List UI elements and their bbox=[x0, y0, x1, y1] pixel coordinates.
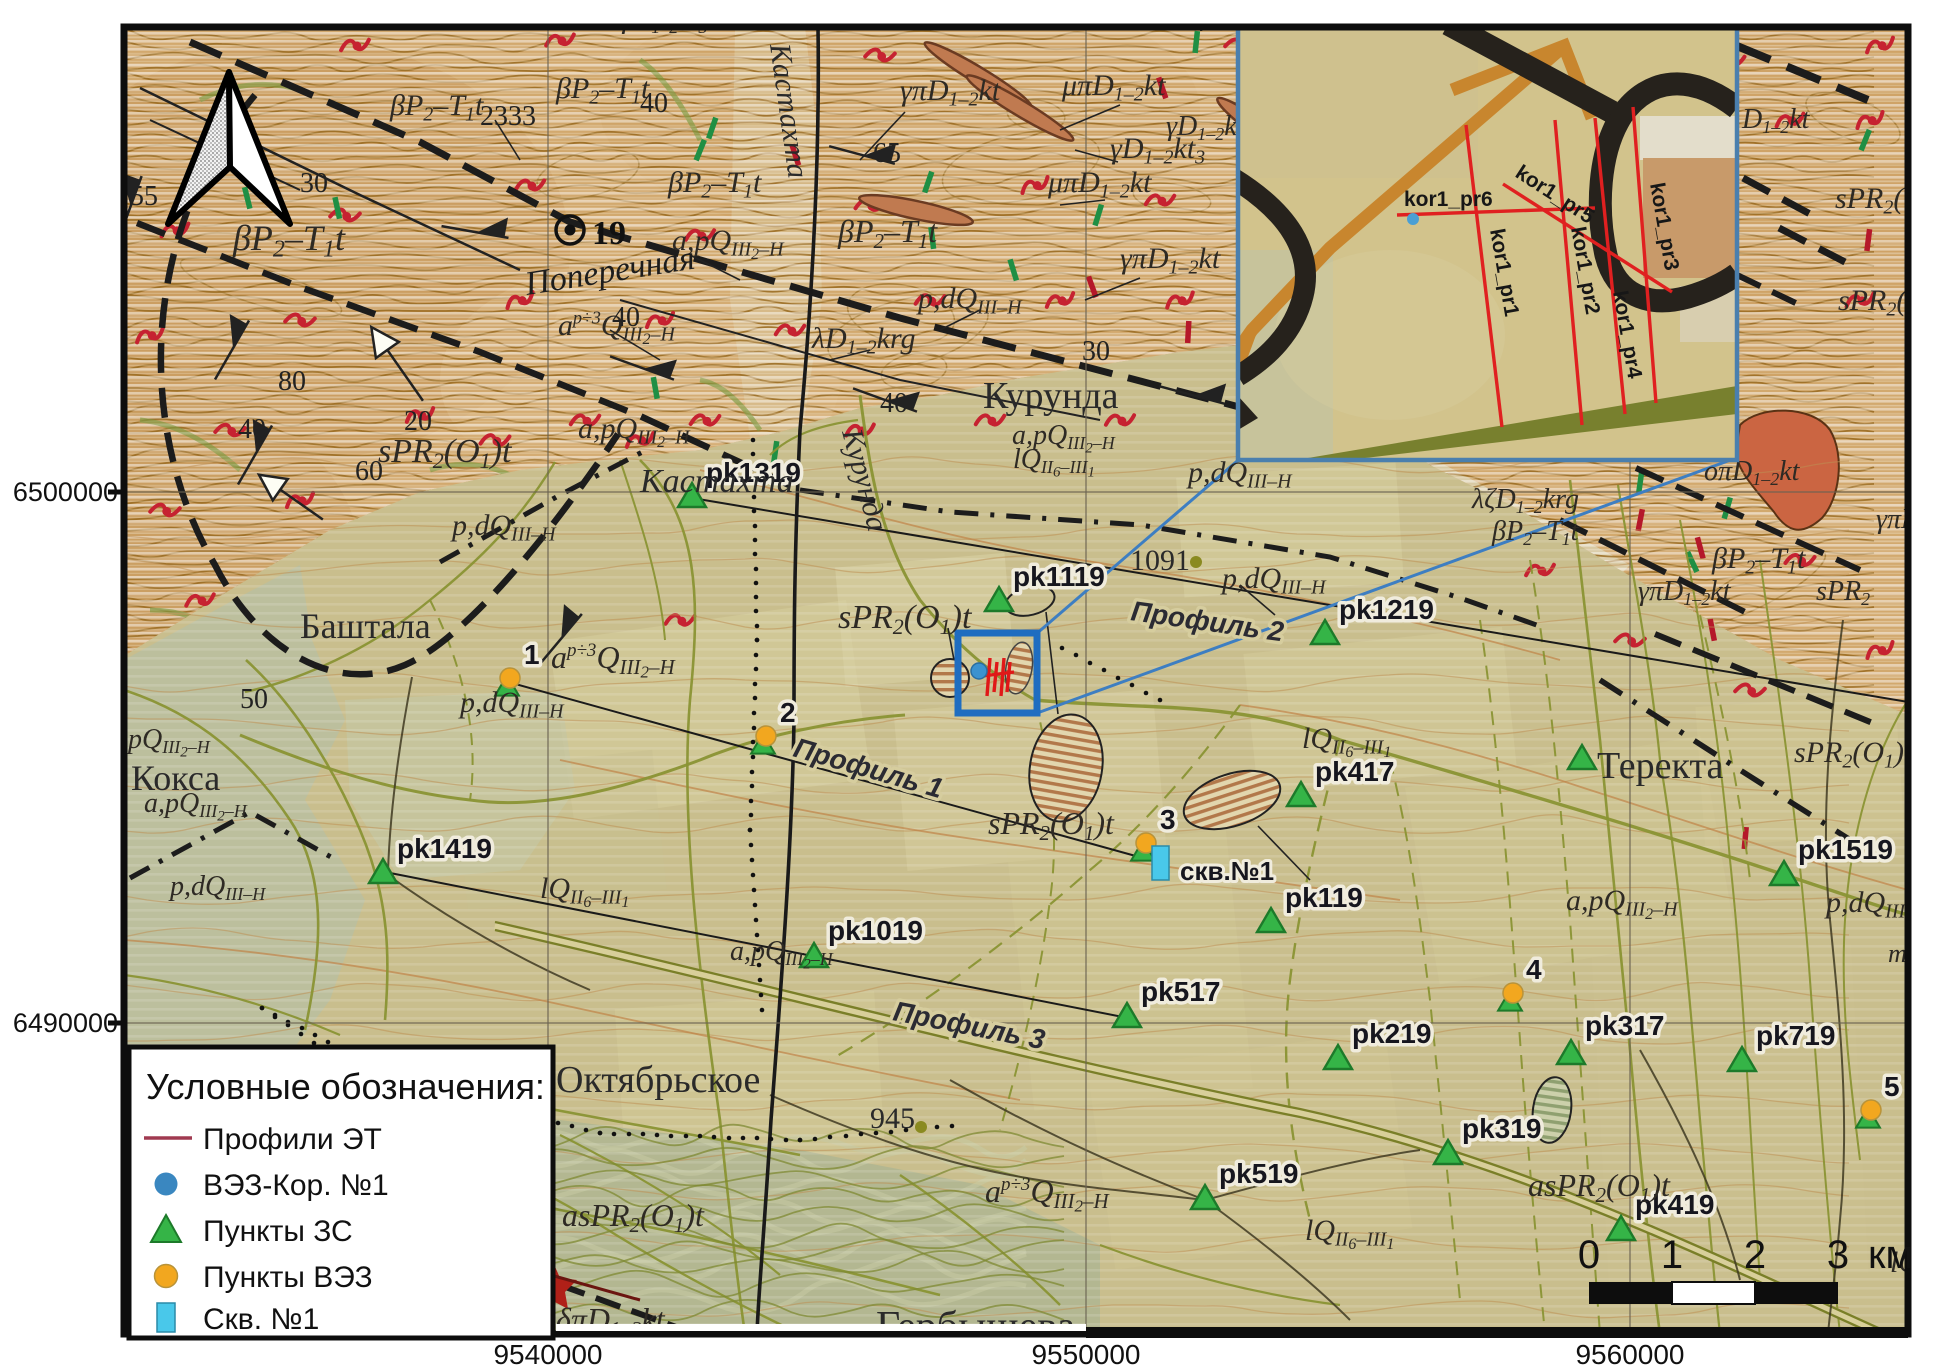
svg-text:6490000: 6490000 bbox=[13, 1008, 118, 1038]
svg-text:ВЭЗ-Кор. №1: ВЭЗ-Кор. №1 bbox=[203, 1169, 389, 1202]
svg-text:pk1119: pk1119 bbox=[1013, 561, 1105, 592]
svg-text:pk1219: pk1219 bbox=[1339, 594, 1434, 625]
svg-text:1: 1 bbox=[1661, 1233, 1683, 1277]
svg-text:kor1_pr6: kor1_pr6 bbox=[1404, 188, 1493, 211]
svg-text:pk1519: pk1519 bbox=[1798, 834, 1893, 865]
svg-text:Профили ЭТ: Профили ЭТ bbox=[203, 1123, 382, 1156]
svg-text:20: 20 bbox=[404, 406, 432, 437]
svg-text:9560000: 9560000 bbox=[1575, 1339, 1684, 1370]
svg-text:19: 19 bbox=[592, 215, 626, 252]
svg-text:9540000: 9540000 bbox=[493, 1339, 602, 1370]
svg-text:pk1419: pk1419 bbox=[397, 833, 492, 864]
svg-text:μπD1–2kt: μπD1–2kt bbox=[1047, 166, 1152, 202]
svg-text:т: т bbox=[1888, 939, 1907, 968]
svg-text:1: 1 bbox=[524, 639, 540, 670]
svg-text:55: 55 bbox=[130, 181, 158, 212]
svg-text:Октябрьское: Октябрьское bbox=[556, 1059, 760, 1101]
svg-text:60: 60 bbox=[355, 456, 383, 487]
svg-text:40: 40 bbox=[612, 302, 640, 333]
svg-text:30: 30 bbox=[300, 168, 328, 199]
svg-text:Пункты ЗС: Пункты ЗС bbox=[203, 1215, 353, 1248]
svg-text:Условные обозначения:: Условные обозначения: bbox=[146, 1066, 545, 1107]
svg-text:км: км bbox=[1868, 1233, 1913, 1277]
svg-text:40: 40 bbox=[238, 414, 266, 445]
svg-text:3: 3 bbox=[1160, 804, 1176, 835]
svg-text:2: 2 bbox=[1744, 1233, 1766, 1277]
svg-text:30: 30 bbox=[1082, 336, 1110, 367]
svg-text:40: 40 bbox=[880, 388, 908, 419]
svg-text:pk219: pk219 bbox=[1352, 1018, 1431, 1049]
svg-text:3: 3 bbox=[1827, 1233, 1849, 1277]
svg-text:0: 0 bbox=[1578, 1233, 1600, 1277]
svg-text:pk719: pk719 bbox=[1756, 1020, 1835, 1051]
svg-text:Пункты ВЭЗ: Пункты ВЭЗ bbox=[203, 1261, 373, 1294]
svg-text:Кокса: Кокса bbox=[131, 758, 220, 798]
svg-text:50: 50 bbox=[240, 684, 268, 715]
svg-text:pk1019: pk1019 bbox=[828, 915, 923, 946]
svg-text:sPR2(О1)t: sPR2(О1)t bbox=[378, 433, 513, 473]
svg-text:Кастахта: Кастахта bbox=[639, 463, 794, 500]
svg-text:9550000: 9550000 bbox=[1031, 1339, 1140, 1370]
svg-text:pk517: pk517 bbox=[1141, 976, 1220, 1007]
svg-text:Теректа: Теректа bbox=[1597, 745, 1724, 787]
svg-text:sPR2(О1)t: sPR2(О1)t bbox=[988, 805, 1115, 845]
svg-text:1091: 1091 bbox=[1130, 544, 1190, 577]
svg-text:40: 40 bbox=[640, 88, 668, 119]
svg-text:5: 5 bbox=[1884, 1071, 1900, 1102]
svg-text:sPR2(О1)t: sPR2(О1)t bbox=[838, 599, 973, 639]
svg-text:pk319: pk319 bbox=[1462, 1113, 1541, 1144]
svg-text:μπD1–2kt: μπD1–2kt bbox=[1061, 69, 1166, 105]
svg-text:pk317: pk317 bbox=[1585, 1010, 1664, 1041]
svg-text:2: 2 bbox=[780, 697, 796, 728]
svg-text:4: 4 bbox=[1526, 954, 1542, 985]
svg-text:pk119: pk119 bbox=[1285, 882, 1363, 913]
svg-text:945: 945 bbox=[870, 1102, 915, 1135]
svg-text:скв.№1: скв.№1 bbox=[1180, 856, 1274, 886]
svg-text:Скв. №1: Скв. №1 bbox=[203, 1303, 319, 1336]
svg-text:Курунда: Курунда bbox=[983, 375, 1119, 417]
svg-text:Баштала: Баштала bbox=[300, 606, 431, 646]
svg-text:65: 65 bbox=[873, 138, 901, 169]
svg-text:pk519: pk519 bbox=[1219, 1158, 1298, 1189]
svg-text:80: 80 bbox=[278, 366, 306, 397]
svg-text:2333: 2333 bbox=[480, 101, 536, 132]
svg-text:6500000: 6500000 bbox=[13, 477, 118, 507]
